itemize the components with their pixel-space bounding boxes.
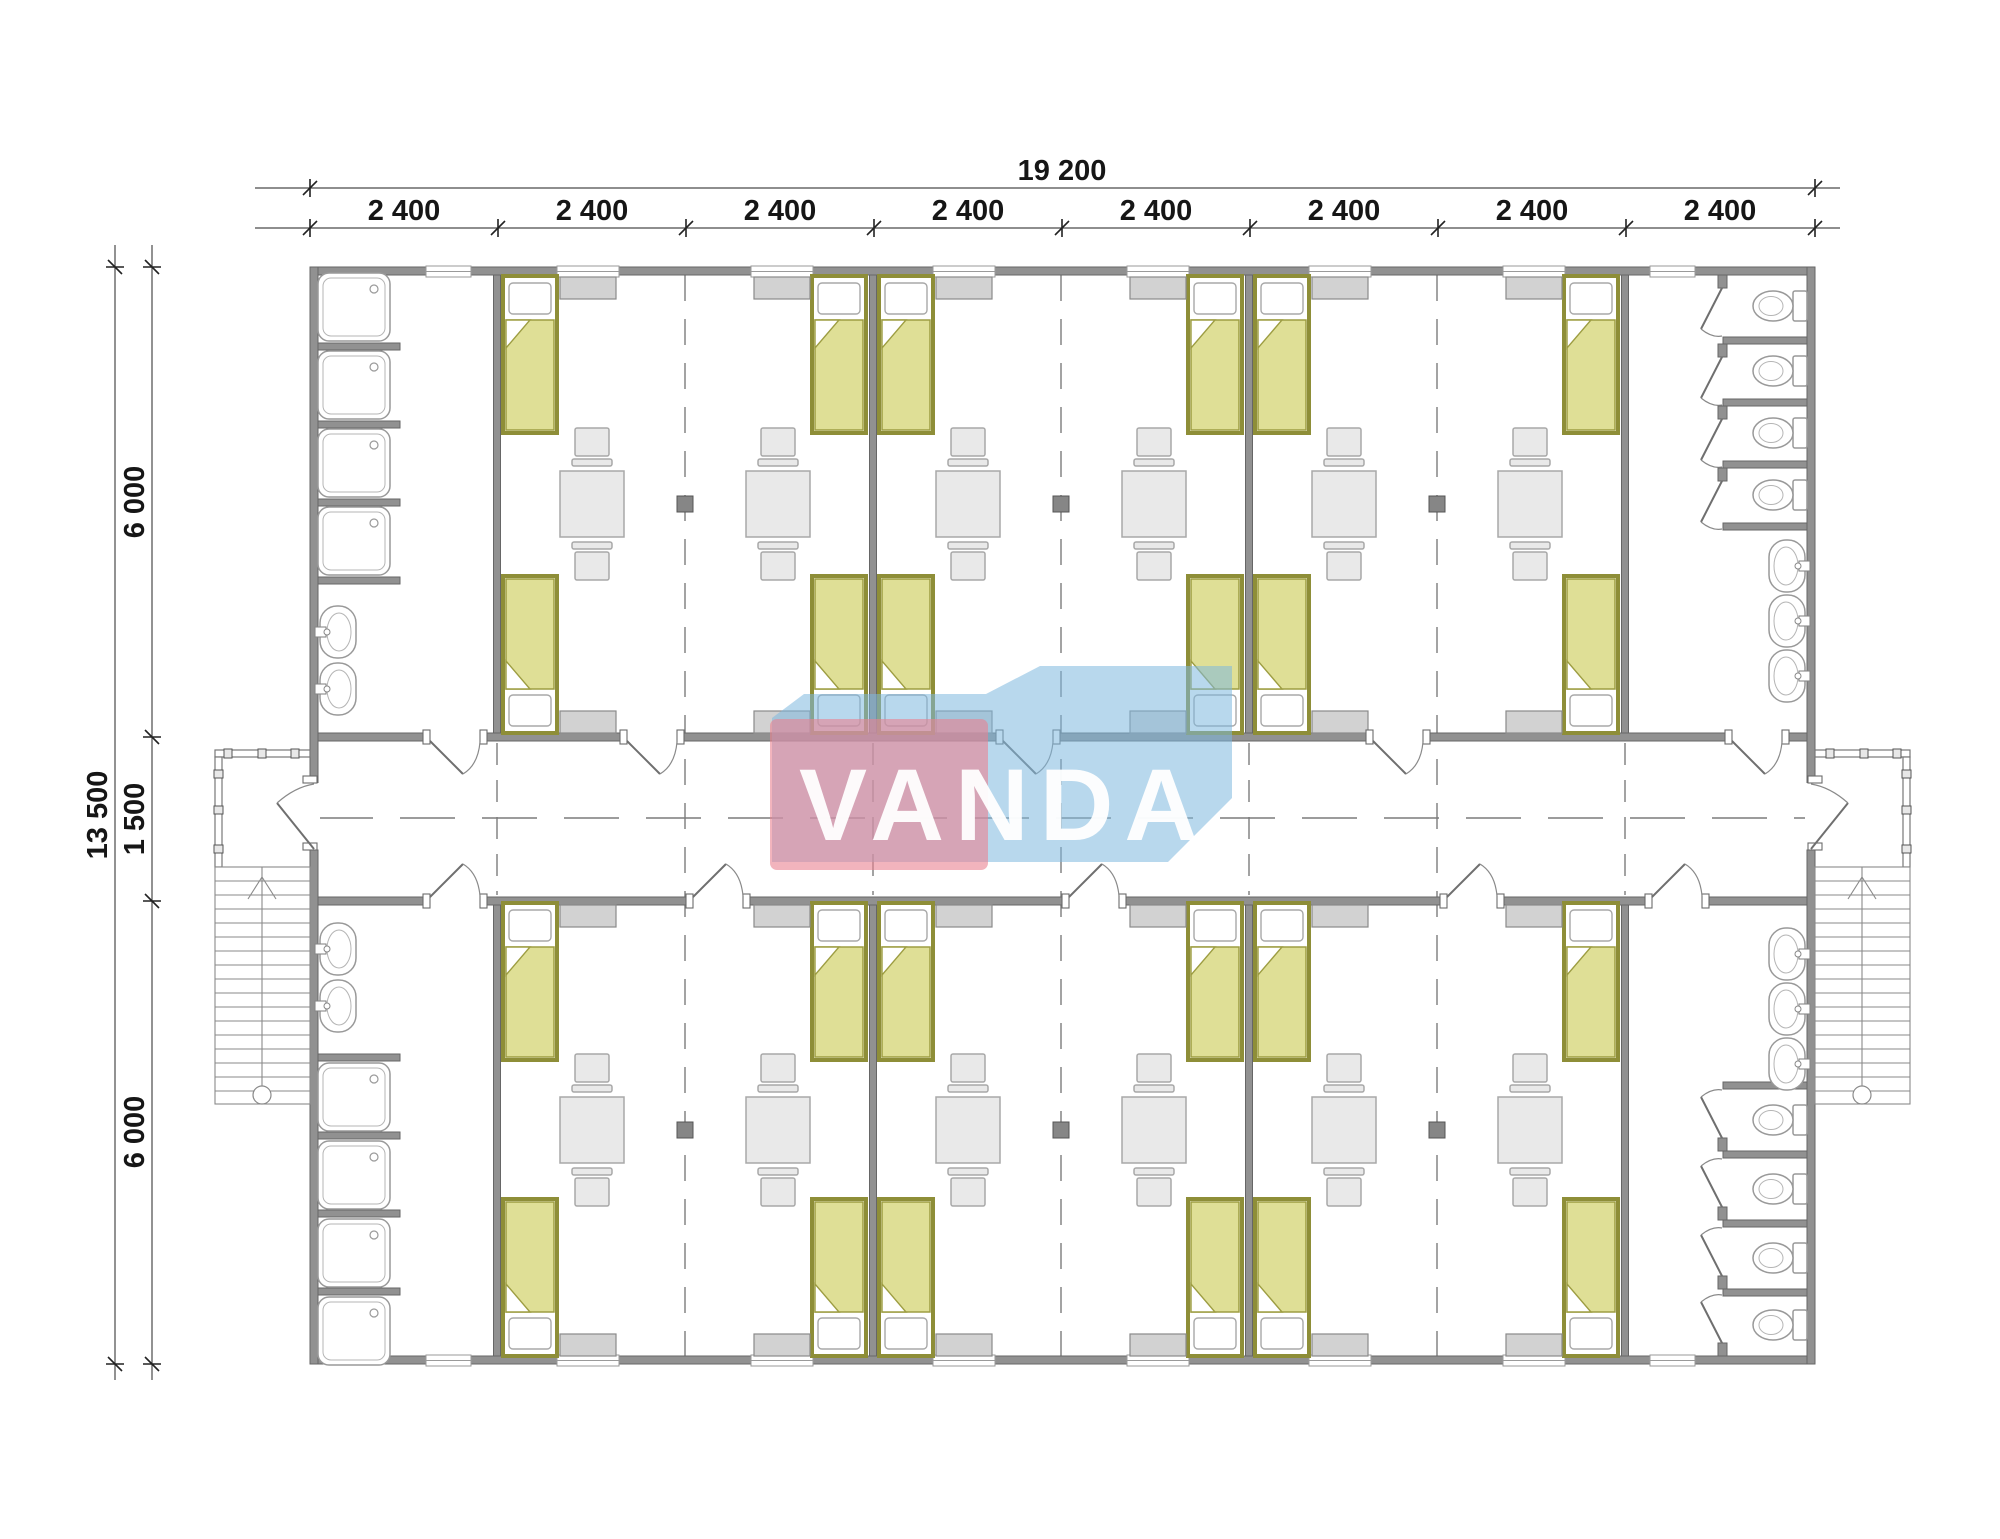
washroom-top (315, 273, 400, 715)
bed (1564, 276, 1618, 433)
exterior-wall-top (310, 267, 1815, 275)
dimension-segment: 6 000 (119, 466, 151, 539)
exterior-wall-right (1807, 267, 1815, 783)
stall-door (1701, 275, 1727, 336)
dimension-overall-height: 13 500 (82, 771, 114, 860)
bed (503, 276, 557, 433)
dimension-overall-width: 19 200 (1018, 155, 1107, 187)
cabinet (560, 277, 616, 299)
dining-table (560, 428, 624, 580)
dimension-segment: 6 000 (119, 1096, 151, 1169)
exterior-wall-left (310, 850, 318, 1364)
partition-wall (1246, 905, 1253, 1356)
partition-wall (494, 905, 501, 1356)
dimension-segment: 1 500 (119, 783, 151, 856)
door (1062, 864, 1126, 908)
partition-wall (1622, 905, 1629, 1356)
wash-basin (1769, 983, 1810, 1035)
dimension-segment: 2 400 (932, 195, 1005, 227)
floor-plan-drawing: VANDA 19 200 2 400 2 400 2 400 2 400 2 4… (0, 0, 2000, 1539)
bed (503, 903, 557, 1060)
dimension-segment: 2 400 (1120, 195, 1193, 227)
dimension-segment: 2 400 (744, 195, 817, 227)
door (423, 864, 487, 908)
dining-table (1122, 428, 1186, 580)
wash-basin (315, 606, 356, 658)
toilet (1753, 1174, 1807, 1204)
bed (503, 576, 557, 733)
wash-basin (1769, 650, 1810, 702)
module-joint (677, 496, 693, 512)
bed (1188, 276, 1242, 433)
dimension-segment: 2 400 (556, 195, 629, 227)
watermark-logo: VANDA (770, 666, 1232, 870)
wash-basin (1769, 595, 1810, 647)
staircase-right (1815, 867, 1910, 1104)
shower-tray (318, 1219, 390, 1287)
bed (812, 276, 866, 433)
stall-door (1701, 1228, 1727, 1289)
washroom-bottom (315, 923, 400, 1365)
partition-wall (1246, 275, 1253, 733)
dining-table (746, 428, 810, 580)
bed (1255, 276, 1309, 433)
dimension-segment: 2 400 (1308, 195, 1381, 227)
bed (1564, 576, 1618, 733)
stall-door (1701, 1090, 1727, 1151)
window (426, 266, 471, 277)
dimension-segment: 2 400 (1684, 195, 1757, 227)
dining-table (1498, 428, 1562, 580)
wash-basin (1769, 540, 1810, 592)
bed (1255, 576, 1309, 733)
bed (879, 276, 933, 433)
toilet (1753, 1310, 1807, 1340)
toilet (1753, 480, 1807, 510)
porch-left (214, 749, 310, 867)
door (1440, 864, 1504, 908)
entrance-door-left (277, 776, 320, 850)
entrance-door-right (1805, 776, 1848, 850)
wash-basin (315, 980, 356, 1032)
door (1725, 730, 1789, 774)
door (1366, 730, 1430, 774)
shower-tray (318, 1297, 390, 1365)
stall-door (1701, 468, 1727, 529)
wc-bottom (1701, 928, 1810, 1356)
exterior-wall-left (310, 267, 318, 783)
door (423, 730, 487, 774)
stall-door (1701, 406, 1727, 467)
door (1645, 864, 1709, 908)
partition-wall (870, 275, 877, 733)
shower-tray (318, 1063, 390, 1131)
shower-tray (318, 507, 390, 575)
dining-table (936, 428, 1000, 580)
wc-top (1701, 275, 1810, 702)
partition-wall (494, 275, 501, 733)
partition-wall (1622, 275, 1629, 733)
floor-plan-page: VANDA 19 200 2 400 2 400 2 400 2 400 2 4… (0, 0, 2000, 1539)
logo-text: VANDA (799, 748, 1209, 862)
toilet (1753, 291, 1807, 321)
stall-door (1701, 344, 1727, 405)
door (686, 864, 750, 908)
porch-right (1815, 749, 1911, 867)
exterior-wall-right (1807, 850, 1815, 1364)
toilet (1753, 1105, 1807, 1135)
wash-basin (315, 663, 356, 715)
partition-wall (870, 905, 877, 1356)
wash-basin (315, 923, 356, 975)
stall-door (1701, 1159, 1727, 1220)
dimension-segment: 2 400 (1496, 195, 1569, 227)
shower-tray (318, 273, 390, 341)
toilet (1753, 356, 1807, 386)
dining-table (1312, 428, 1376, 580)
stall-door (1701, 1295, 1727, 1356)
toilet (1753, 1243, 1807, 1273)
shower-tray (318, 351, 390, 419)
shower-tray (318, 1141, 390, 1209)
staircase-left (215, 867, 310, 1104)
toilet (1753, 418, 1807, 448)
door (620, 730, 684, 774)
shower-tray (318, 429, 390, 497)
dimension-segment: 2 400 (368, 195, 441, 227)
wash-basin (1769, 928, 1810, 980)
